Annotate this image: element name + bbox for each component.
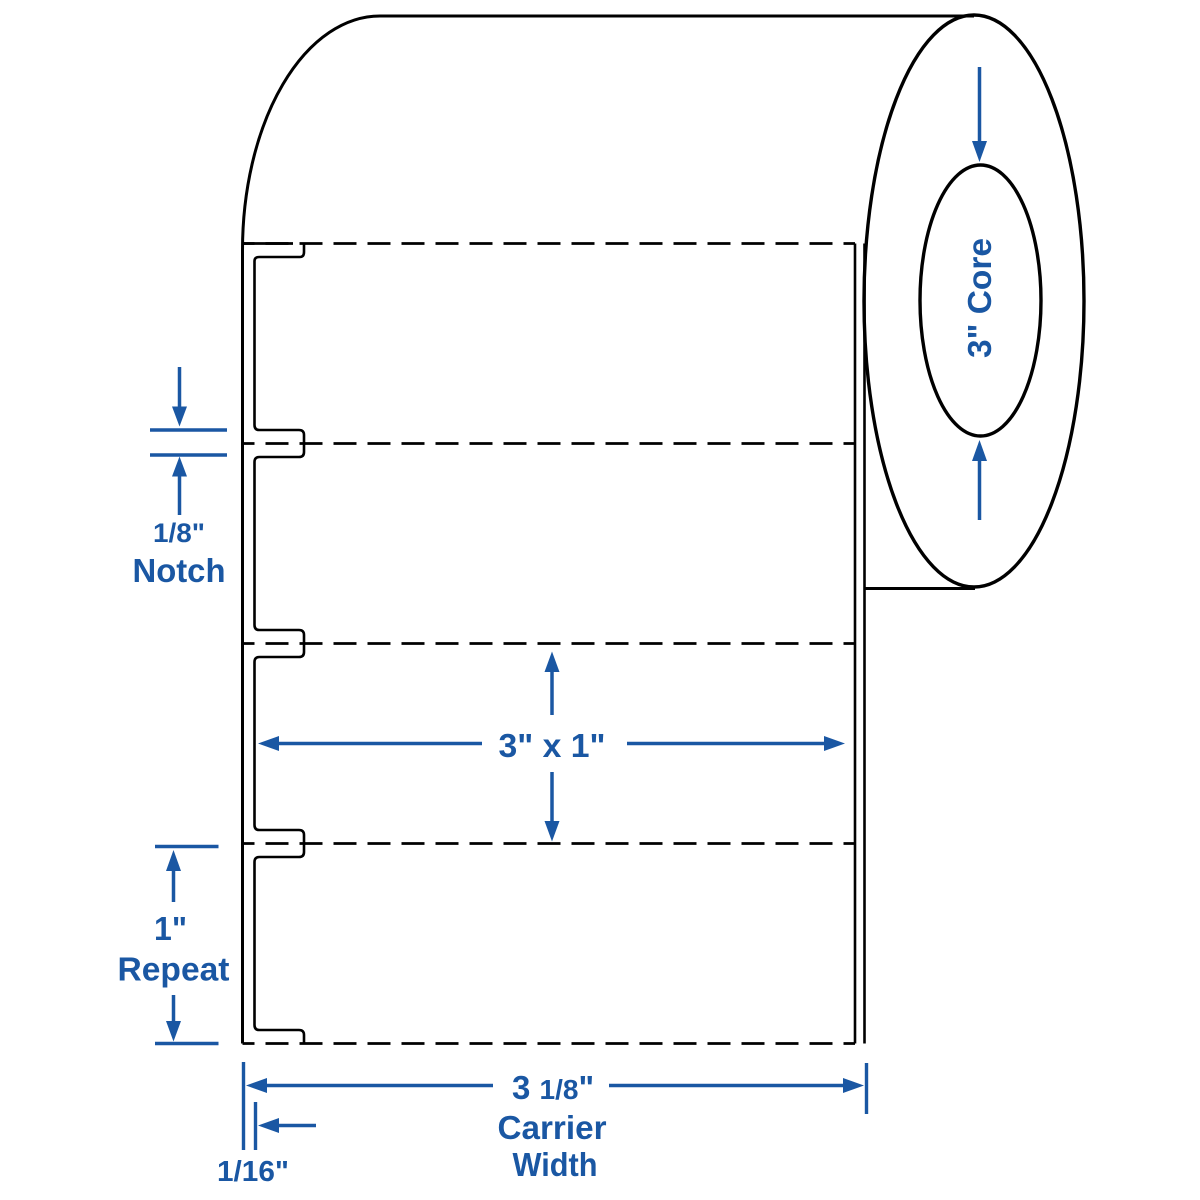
svg-text:3" x 1": 3" x 1"	[499, 727, 606, 764]
svg-text:3 1/8": 3 1/8"	[512, 1069, 594, 1106]
svg-text:Carrier: Carrier	[498, 1109, 607, 1146]
svg-text:Notch: Notch	[133, 552, 226, 589]
svg-text:3" Core: 3" Core	[961, 238, 998, 358]
svg-text:1/8": 1/8"	[153, 518, 205, 548]
svg-text:1": 1"	[154, 910, 187, 947]
svg-text:Width: Width	[513, 1146, 598, 1183]
svg-text:Repeat: Repeat	[118, 951, 230, 988]
svg-text:1/16": 1/16"	[217, 1156, 289, 1188]
